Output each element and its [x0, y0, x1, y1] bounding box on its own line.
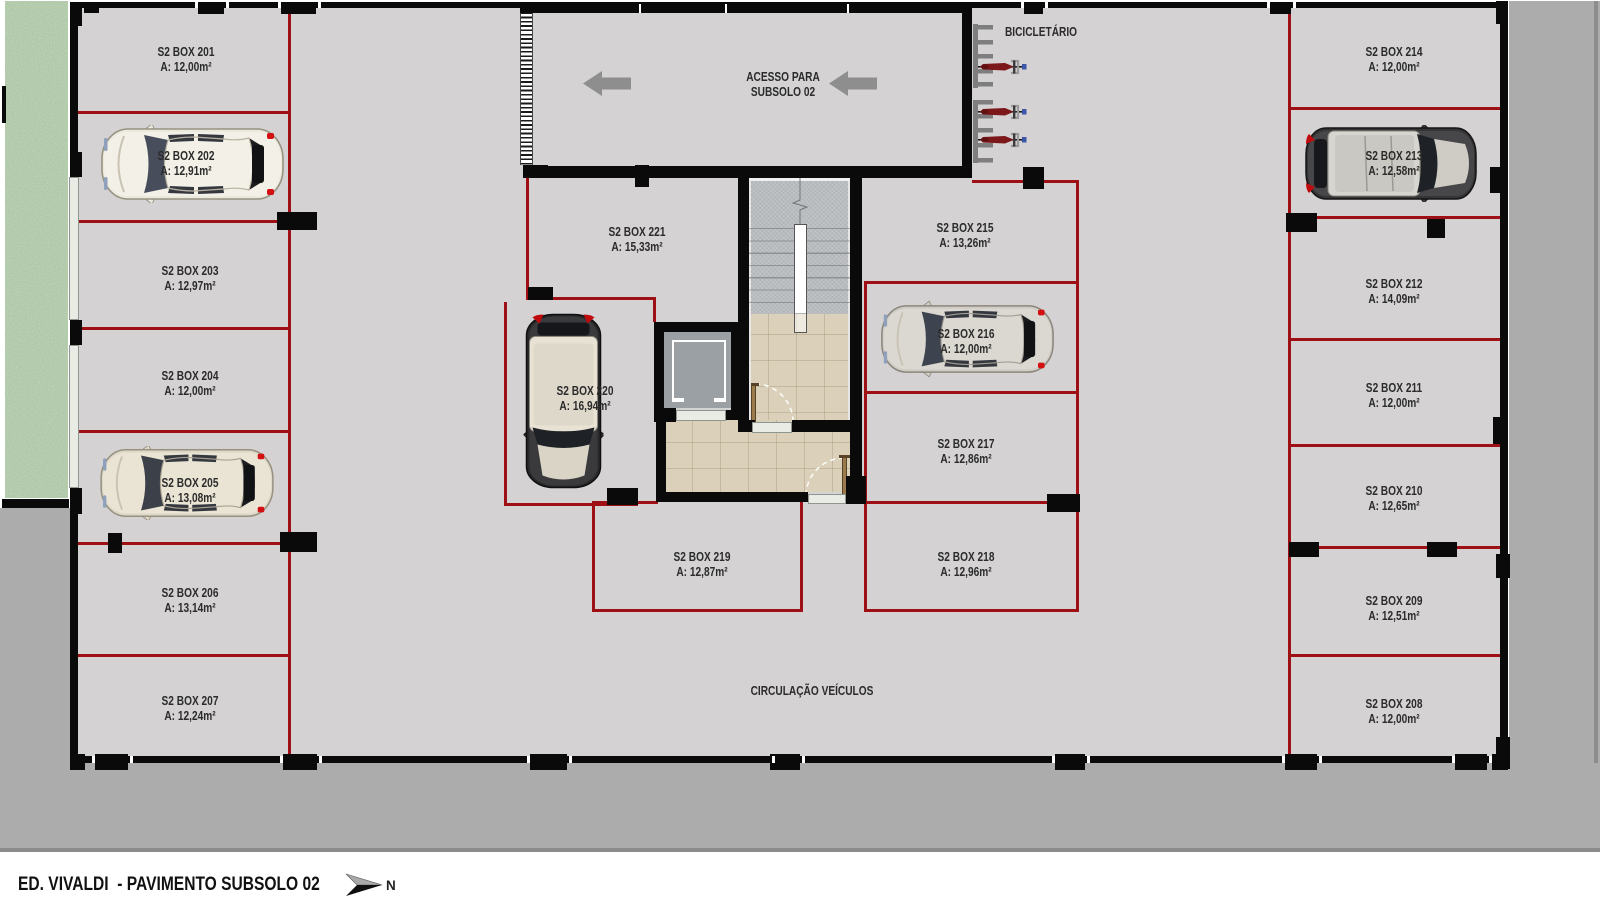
svg-text:N: N [386, 878, 396, 893]
